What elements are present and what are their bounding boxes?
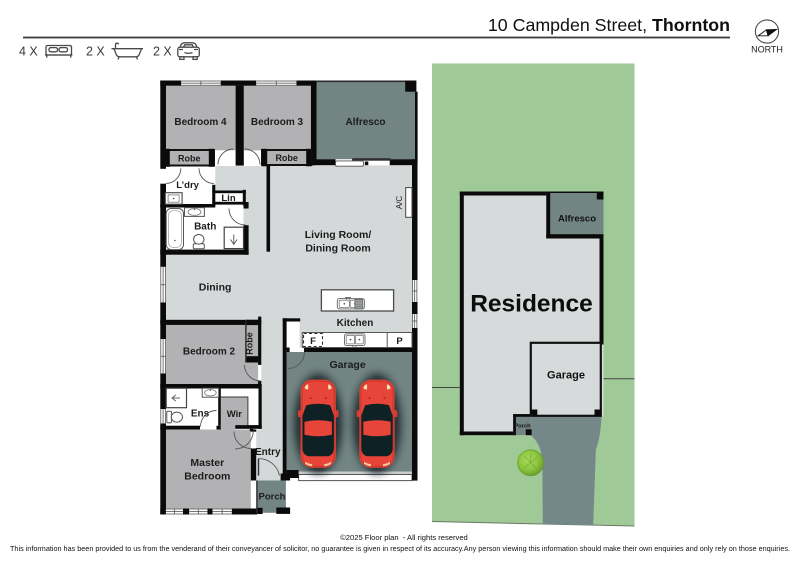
svg-text:Garage: Garage <box>330 359 366 371</box>
svg-text:A/C: A/C <box>395 196 404 210</box>
svg-text:Robe: Robe <box>178 153 201 163</box>
svg-text:Bedroom 2: Bedroom 2 <box>183 347 236 358</box>
svg-text:Wir: Wir <box>227 409 243 420</box>
svg-text:©2025 Floor plan - All rights: ©2025 Floor plan - All rights reserved <box>340 533 468 542</box>
svg-text:Residence: Residence <box>470 291 593 318</box>
svg-text:L’dry: L’dry <box>176 180 199 191</box>
svg-text:Porch: Porch <box>259 491 286 502</box>
svg-text:Garage: Garage <box>547 370 585 382</box>
svg-text:P: P <box>396 336 403 347</box>
svg-text:NORTH: NORTH <box>751 45 783 55</box>
svg-text:Dining: Dining <box>199 282 232 294</box>
svg-text:Kitchen: Kitchen <box>337 318 374 329</box>
svg-text:Robe: Robe <box>245 332 255 355</box>
svg-text:Bedroom: Bedroom <box>184 471 230 483</box>
svg-text:4 X: 4 X <box>19 45 38 59</box>
svg-text:Living Room/: Living Room/ <box>305 229 372 241</box>
svg-text:Alfresco: Alfresco <box>345 117 385 128</box>
svg-text:Porch: Porch <box>514 424 531 430</box>
svg-text:Robe: Robe <box>275 153 298 163</box>
svg-text:Ens: Ens <box>191 408 210 419</box>
svg-text:2 X: 2 X <box>86 45 105 59</box>
svg-text:Bath: Bath <box>194 222 216 233</box>
svg-text:Lin: Lin <box>221 193 235 204</box>
svg-text:10 Campden Street, Thornton: 10 Campden Street, Thornton <box>488 15 730 35</box>
svg-text:Alfresco: Alfresco <box>558 214 596 225</box>
svg-text:Bedroom 3: Bedroom 3 <box>251 117 304 128</box>
svg-text:2 X: 2 X <box>153 45 172 59</box>
svg-text:This information has been prov: This information has been provided to us… <box>10 546 790 553</box>
svg-text:Dining Room: Dining Room <box>305 243 370 255</box>
svg-text:F: F <box>310 336 316 347</box>
svg-text:Entry: Entry <box>255 447 281 458</box>
svg-text:Bedroom 4: Bedroom 4 <box>174 117 227 128</box>
svg-text:Master: Master <box>190 457 224 469</box>
